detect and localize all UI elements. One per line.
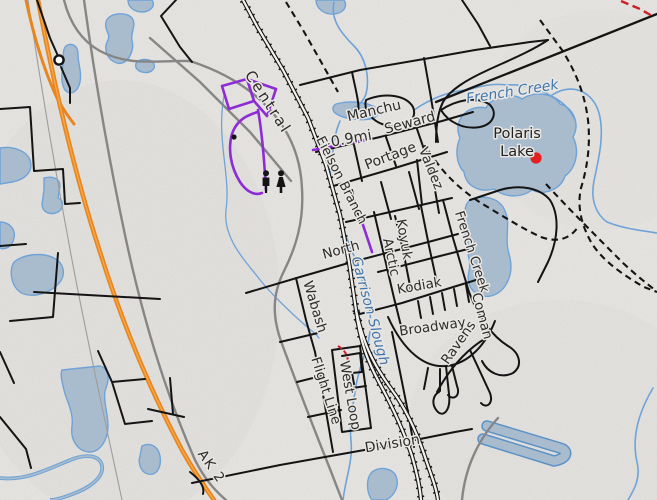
label-lake: Lake [500,144,534,160]
pond [139,444,160,474]
trail-node-dot [231,134,236,139]
map-canvas[interactable]: Central Manchu 0.9mi Seward Portage Vald… [0,0,657,500]
label-polaris: Polaris [493,126,541,142]
map-svg: Central Manchu 0.9mi Seward Portage Vald… [0,0,657,500]
pond [62,44,81,92]
junction-circle-marker [54,55,63,64]
pond [368,469,398,500]
